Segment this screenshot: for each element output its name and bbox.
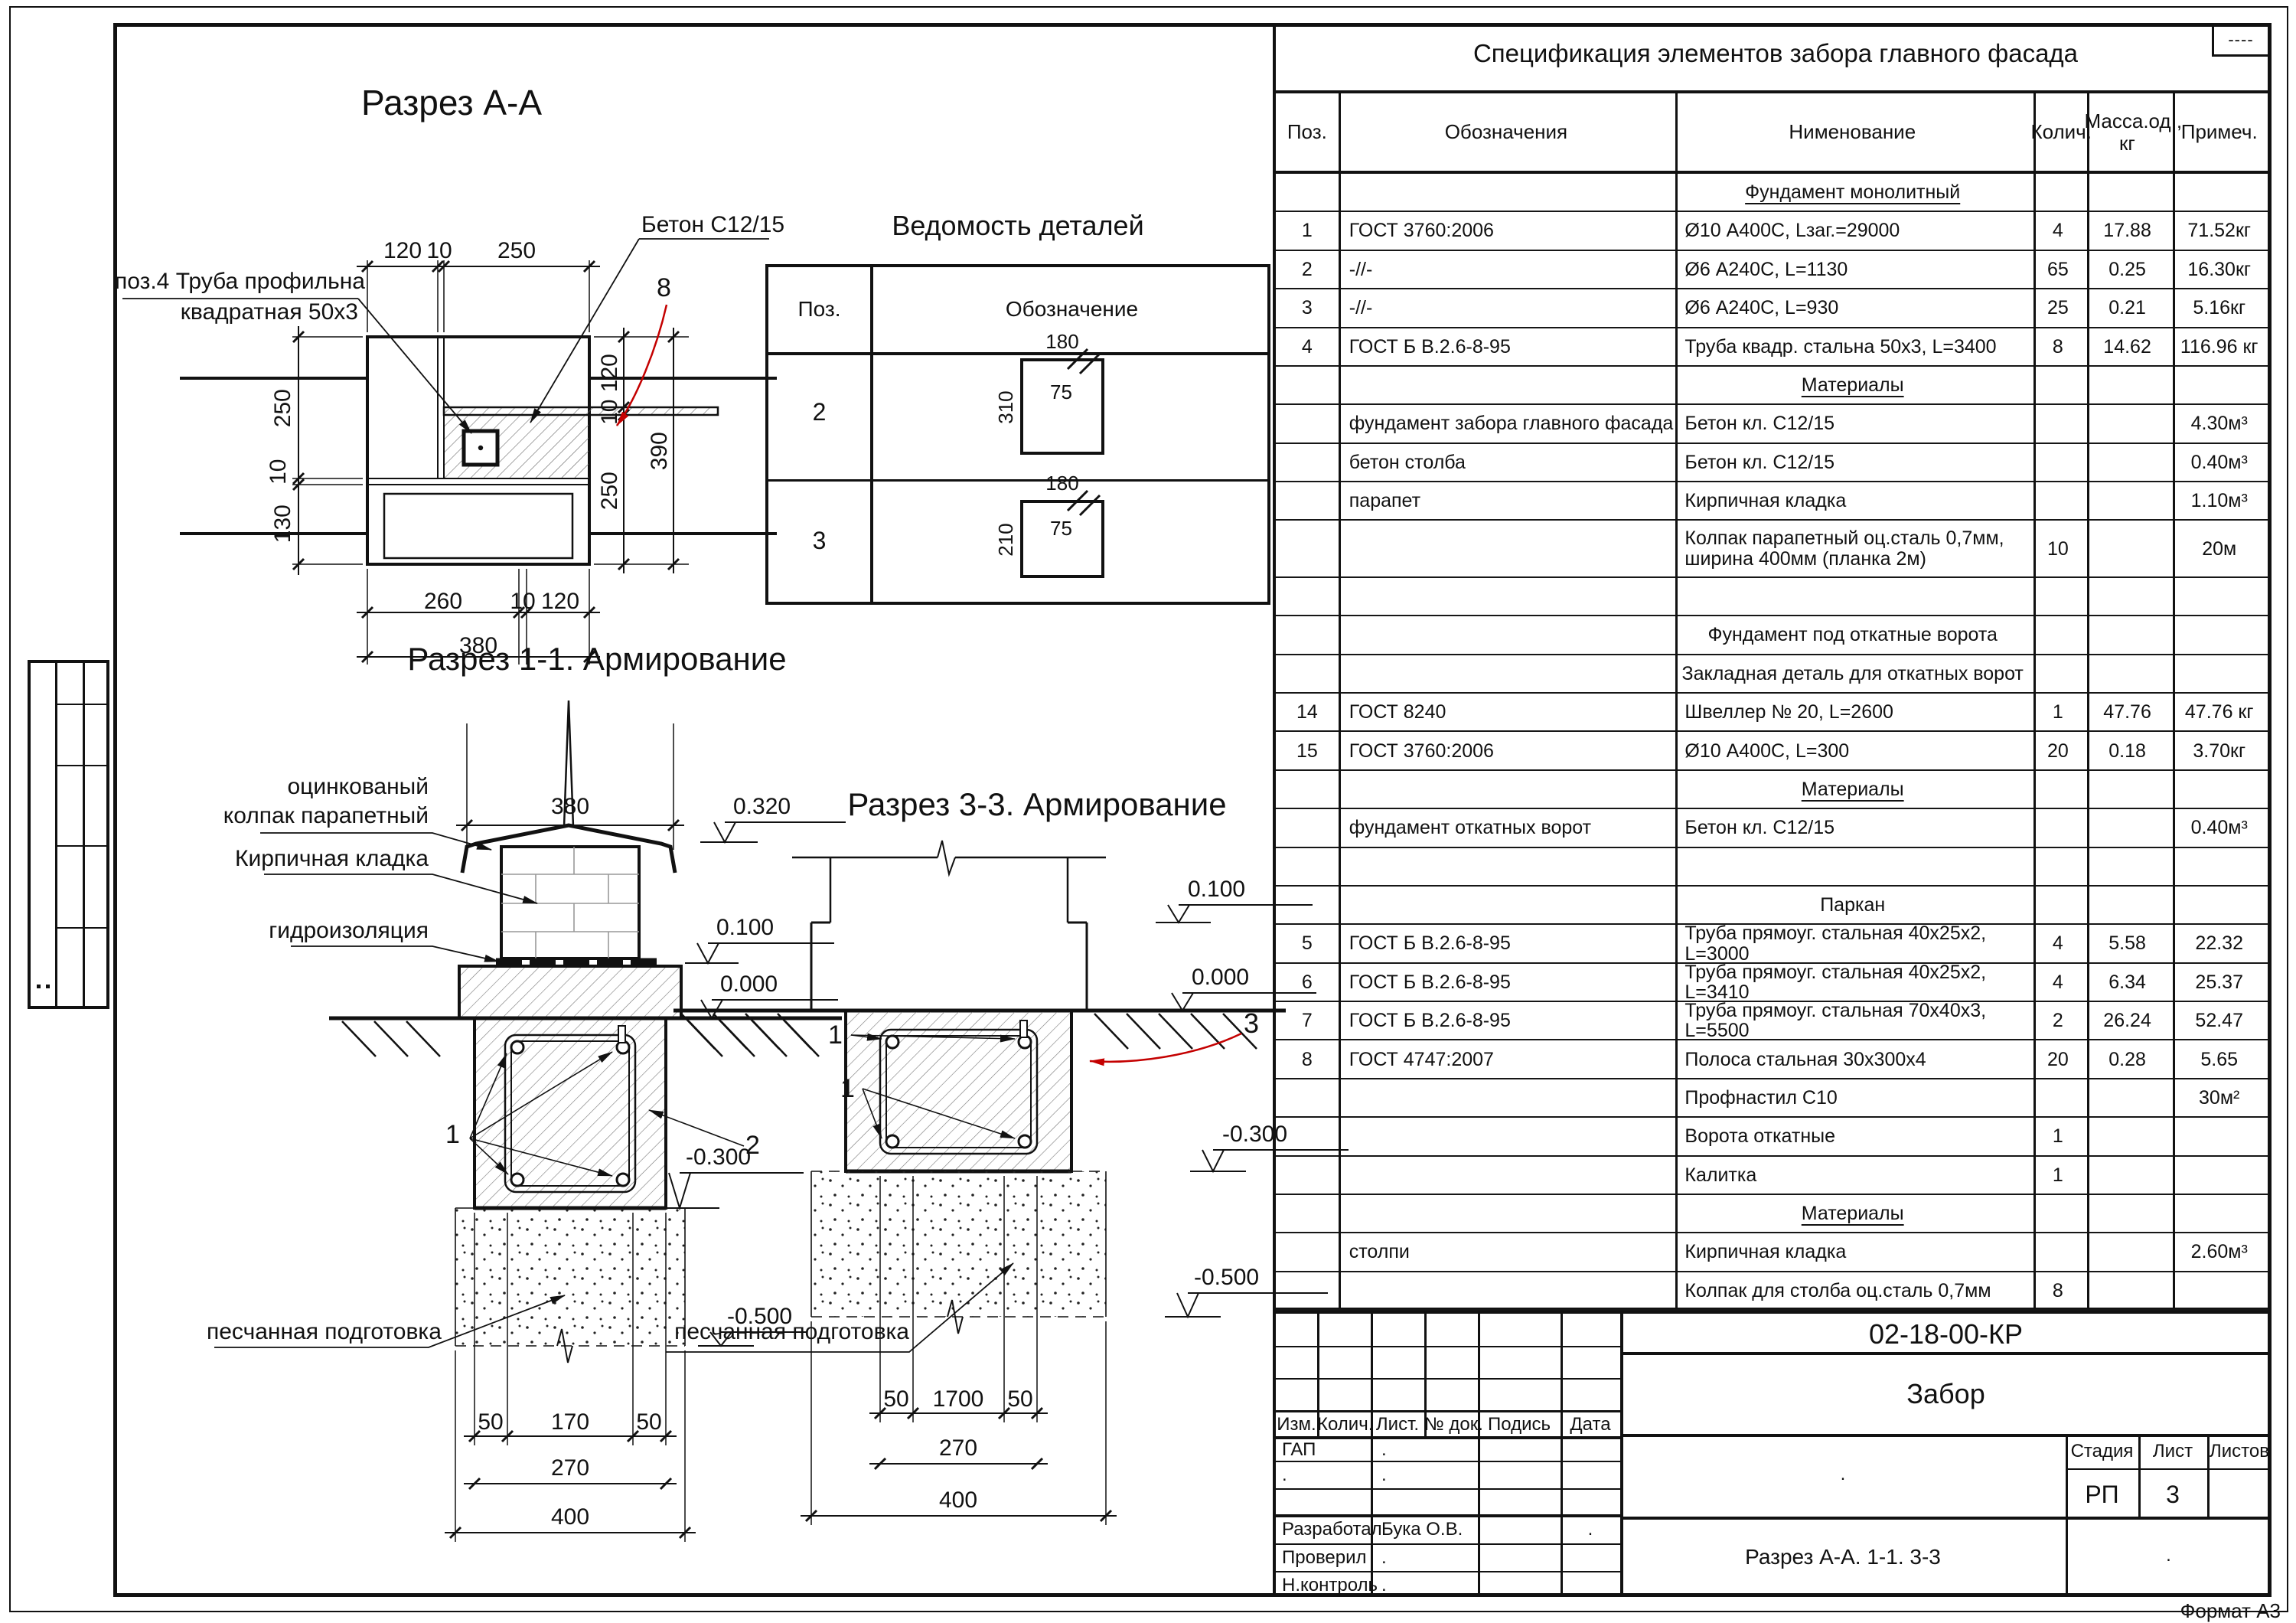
spec-table: Поз. Обозначения Нименование Колич. Масс… bbox=[1273, 90, 2272, 1311]
tb-line bbox=[1561, 1314, 1563, 1593]
details-sketches bbox=[765, 264, 1270, 605]
spec-item-row: фундамент откатных воротБетон кл. С12/15… bbox=[1276, 809, 2268, 847]
section-33-drawing bbox=[658, 834, 1378, 1592]
spec-section-title: Закладная деталь для откатных ворот bbox=[1682, 663, 2024, 684]
spec-cell: Ø10 А400С, L=300 bbox=[1674, 741, 2031, 761]
spec-cell: ГОСТ 3760:2006 bbox=[1339, 741, 1675, 761]
spec-item-row: 2-//-Ø6 А240С, L=1130650.2516.30кг bbox=[1276, 251, 2268, 289]
spec-cell: Бетон кл. С12/15 bbox=[1674, 452, 2031, 472]
aa-dim: 250 bbox=[494, 239, 540, 263]
spec-cell: Закладная деталь для откатных ворот bbox=[1674, 664, 2031, 684]
s11-level: -0.300 bbox=[686, 1145, 751, 1170]
s33-callout: 3 bbox=[1244, 1009, 1259, 1039]
aa-dim: 120 bbox=[541, 589, 575, 614]
tb-cell-dot: . bbox=[1620, 1464, 2066, 1485]
aa-dim: 120 bbox=[380, 239, 426, 263]
s11-callout: 2 bbox=[745, 1132, 760, 1160]
spec-cell: -//- bbox=[1339, 298, 1675, 318]
spec-vline bbox=[2033, 93, 2036, 1308]
s33-dim: 50 bbox=[999, 1387, 1042, 1412]
spec-empty-row bbox=[1276, 848, 2268, 887]
spec-cell: 8 bbox=[2031, 337, 2085, 357]
spec-cell: 2 bbox=[1276, 260, 1339, 279]
tb-role-date: . bbox=[1561, 1519, 1620, 1540]
strip-line bbox=[55, 845, 106, 847]
spec-item-row: Ворота откатные1 bbox=[1276, 1118, 2268, 1156]
tb-col-podpis: Подись bbox=[1478, 1414, 1561, 1435]
spec-cell: Ø6 А240С, L=930 bbox=[1674, 298, 2031, 318]
spec-cell: 5.58 bbox=[2085, 933, 2170, 953]
spec-cell: 0.28 bbox=[2085, 1050, 2170, 1069]
tb-line bbox=[1620, 1352, 2272, 1355]
tb-line bbox=[1276, 1514, 1620, 1517]
spec-cell: 15 bbox=[1276, 741, 1339, 761]
spec-cell: бетон столба bbox=[1339, 452, 1675, 472]
spec-cell: Труба квадр. стальна 50х3, L=3400 bbox=[1674, 337, 2031, 357]
spec-section-row: Закладная деталь для откатных ворот bbox=[1276, 655, 2268, 694]
tb-object-name: Забор bbox=[1620, 1378, 2272, 1410]
spec-cell: 26.24 bbox=[2085, 1011, 2170, 1030]
spec-cell: 5 bbox=[1276, 933, 1339, 953]
strip-dot bbox=[37, 985, 41, 988]
spec-cell: ГОСТ Б В.2.6-8-95 bbox=[1339, 1011, 1675, 1030]
tb-line bbox=[1276, 1461, 1620, 1462]
spec-cell: Паркан bbox=[1674, 895, 2031, 915]
spec-vline bbox=[2087, 93, 2089, 1308]
spec-body: Фундамент монолитный1ГОСТ 3760:2006Ø10 А… bbox=[1276, 174, 2268, 1311]
spec-col-mass-1: Масса.од., bbox=[2084, 109, 2182, 132]
tb-line bbox=[1276, 1346, 1620, 1347]
spec-item-row: 8ГОСТ 4747:2007Полоса стальная 30х300х42… bbox=[1276, 1040, 2268, 1079]
spec-cell: 2 bbox=[2031, 1011, 2085, 1030]
spec-cell: 5.16кг bbox=[2170, 298, 2268, 318]
s11-label: гидроизоляция bbox=[253, 919, 429, 943]
tb-line bbox=[2066, 1468, 2272, 1470]
s33-sand-label: песчанная подготовка bbox=[657, 1320, 909, 1344]
spec-item-row: Профнастил С1030м² bbox=[1276, 1079, 2268, 1118]
tb-role-label: ГАП bbox=[1276, 1439, 1372, 1461]
spec-cell: Бетон кл. С12/15 bbox=[1674, 818, 2031, 838]
tb-col-list: Лист. bbox=[1371, 1414, 1424, 1435]
spec-item-row: Колпак парапетный оц.сталь 0,7мм, ширина… bbox=[1276, 521, 2268, 578]
spec-cell: 0.25 bbox=[2085, 260, 2170, 279]
spec-cell: 10 bbox=[2031, 539, 2085, 559]
spec-cell: Материалы bbox=[1674, 779, 2031, 799]
spec-vline bbox=[2173, 93, 2175, 1308]
spec-cell: Кирпичная кладка bbox=[1674, 491, 2031, 511]
spec-cell: 6.34 bbox=[2085, 972, 2170, 992]
spec-cell: 0.21 bbox=[2085, 298, 2170, 318]
spec-item-row: столпиКирпичная кладка2.60м³ bbox=[1276, 1233, 2268, 1272]
spec-title: Спецификация элементов забора главного ф… bbox=[1293, 40, 2258, 67]
spec-cell: Швеллер № 20, L=2600 bbox=[1674, 702, 2031, 722]
spec-cell: 2.60м³ bbox=[2170, 1242, 2268, 1262]
spec-section-title: Фундамент под откатные ворота bbox=[1707, 624, 1997, 645]
aa-dim: 250 bbox=[271, 385, 295, 431]
det-sketch-dim: 180 bbox=[1038, 472, 1087, 494]
spec-item-row: 4ГОСТ Б В.2.6-8-95Труба квадр. стальна 5… bbox=[1276, 328, 2268, 367]
spec-section-row: Материалы bbox=[1276, 771, 2268, 809]
spec-cell: 22.32 bbox=[2170, 933, 2268, 953]
s11-level: 0.320 bbox=[733, 795, 791, 819]
title-block: Изм. Колич. Лист. № док. Подись Дата ГАП… bbox=[1273, 1311, 2272, 1596]
tb-line bbox=[1276, 1571, 1620, 1572]
spec-cell: Фундамент под откатные ворота bbox=[1674, 625, 2031, 645]
spec-cell: ГОСТ Б В.2.6-8-95 bbox=[1339, 337, 1675, 357]
spec-cell: Колпак для столба оц.сталь 0,7мм bbox=[1674, 1281, 2031, 1301]
aa-dim: 10 bbox=[506, 589, 540, 614]
spec-cell: 25 bbox=[2031, 298, 2085, 318]
s11-level: 0.000 bbox=[720, 972, 778, 997]
spec-cell: Материалы bbox=[1674, 1203, 2031, 1223]
det-sketch-dim: 75 bbox=[1050, 518, 1072, 539]
tb-doc-number: 02-18-00-КР bbox=[1620, 1318, 2272, 1350]
s11-dim: 270 bbox=[549, 1456, 592, 1481]
spec-cell: 3.70кг bbox=[2170, 741, 2268, 761]
spec-cell: 4 bbox=[2031, 972, 2085, 992]
s33-level: -0.500 bbox=[1194, 1265, 1259, 1290]
aa-dim: 10 bbox=[598, 395, 622, 429]
tb-sheet-value: 3 bbox=[2138, 1481, 2207, 1509]
tb-line bbox=[1276, 1378, 1620, 1380]
spec-col-designation: Обозначения bbox=[1339, 121, 1674, 143]
spec-cell: 20 bbox=[2031, 1050, 2085, 1069]
spec-col-mass-2: кг bbox=[2119, 132, 2135, 155]
aa-dim: 10 bbox=[422, 239, 456, 263]
spec-item-row: бетон столбаБетон кл. С12/150.40м³ bbox=[1276, 444, 2268, 482]
spec-item-row: парапетКирпичная кладка1.10м³ bbox=[1276, 482, 2268, 521]
spec-cell: 116.96 кг bbox=[2170, 337, 2268, 357]
s11-dim: 50 bbox=[469, 1410, 512, 1435]
spec-cell: Кирпичная кладка bbox=[1674, 1242, 2031, 1262]
spec-section-title: Фундамент монолитный bbox=[1745, 181, 1960, 203]
spec-item-row: 3-//-Ø6 А240С, L=930250.215.16кг bbox=[1276, 289, 2268, 328]
spec-col-note: Примеч. bbox=[2170, 121, 2268, 143]
spec-section-row: Фундамент монолитный bbox=[1276, 174, 2268, 212]
spec-cell: парапет bbox=[1339, 491, 1675, 511]
spec-cell: Труба прямоуг. стальная 40х25х2, L=3000 bbox=[1674, 925, 2031, 963]
s33-dim: 270 bbox=[937, 1436, 980, 1461]
s11-dim: 50 bbox=[628, 1410, 670, 1435]
spec-section-row: Материалы bbox=[1276, 1195, 2268, 1233]
spec-cell: 0.40м³ bbox=[2170, 452, 2268, 472]
aa-dim: 250 bbox=[598, 468, 622, 514]
spec-section-row: Паркан bbox=[1276, 887, 2268, 925]
spec-cell: 8 bbox=[1276, 1050, 1339, 1069]
spec-cell: Ворота откатные bbox=[1674, 1126, 2031, 1146]
s11-dim: 380 bbox=[547, 795, 593, 819]
spec-col-qty: Колич. bbox=[2030, 121, 2084, 143]
tb-col-kolich: Колич. bbox=[1317, 1414, 1371, 1435]
spec-cell: 5.65 bbox=[2170, 1050, 2268, 1069]
spec-col-mass: Масса.од., кг bbox=[2084, 110, 2170, 154]
tb-role-label: . bbox=[1276, 1465, 1372, 1486]
spec-empty-row bbox=[1276, 578, 2268, 616]
aa-dim: 120 bbox=[598, 350, 622, 396]
s33-callout: 1 bbox=[828, 1021, 843, 1050]
tb-role-value: . bbox=[1375, 1575, 1481, 1596]
spec-cell: 4 bbox=[1276, 337, 1339, 357]
tb-role-label: Н.контроль bbox=[1276, 1575, 1372, 1596]
spec-cell: 8 bbox=[2031, 1281, 2085, 1301]
spec-cell: 0.40м³ bbox=[2170, 818, 2268, 838]
spec-header: Поз. Обозначения Нименование Колич. Масс… bbox=[1276, 93, 2268, 174]
spec-cell: Материалы bbox=[1674, 375, 2031, 395]
tb-line bbox=[1276, 1410, 1620, 1412]
left-stamp-strip bbox=[28, 660, 109, 1009]
spec-item-row: 1ГОСТ 3760:2006Ø10 А400С, Lзаг.=29000417… bbox=[1276, 212, 2268, 250]
spec-cell: ГОСТ Б В.2.6-8-95 bbox=[1339, 933, 1675, 953]
spec-cell: 1 bbox=[1276, 220, 1339, 240]
spec-cell: Ø6 А240С, L=1130 bbox=[1674, 260, 2031, 279]
tb-cell-dot: . bbox=[2066, 1545, 2272, 1566]
tb-col-dok: № док. bbox=[1424, 1414, 1478, 1435]
spec-cell: Колпак парапетный оц.сталь 0,7мм, ширина… bbox=[1674, 528, 2031, 569]
spec-item-row: 15ГОСТ 3760:2006Ø10 А400С, L=300200.183.… bbox=[1276, 732, 2268, 770]
spec-section-title: Паркан bbox=[1820, 894, 1885, 916]
spec-cell: ГОСТ 8240 bbox=[1339, 702, 1675, 722]
spec-col-name: Нименование bbox=[1674, 121, 2030, 143]
spec-cell: Фундамент монолитный bbox=[1674, 182, 2031, 202]
strip-line bbox=[55, 704, 106, 705]
tb-line bbox=[1276, 1488, 1620, 1490]
format-label: Формат А3 bbox=[2135, 1600, 2281, 1621]
s33-dim: 1700 bbox=[929, 1387, 987, 1412]
s11-label: оцинкованый bbox=[222, 775, 429, 799]
spec-cell: 4 bbox=[2031, 220, 2085, 240]
spec-cell: Калитка bbox=[1674, 1165, 2031, 1185]
spec-cell: -//- bbox=[1339, 260, 1675, 279]
aa-dim: 380 bbox=[455, 634, 501, 658]
s33-dim: 400 bbox=[937, 1488, 980, 1513]
spec-cell: 14.62 bbox=[2085, 337, 2170, 357]
spec-cell: 1 bbox=[2031, 1165, 2085, 1185]
spec-cell: 47.76 bbox=[2085, 702, 2170, 722]
s33-level: 0.000 bbox=[1192, 965, 1249, 990]
spec-cell: 25.37 bbox=[2170, 972, 2268, 992]
tb-line bbox=[1276, 1543, 1620, 1545]
aa-callout-8: 8 bbox=[657, 274, 671, 302]
det-sketch-dim: 210 bbox=[995, 517, 1016, 563]
tb-col-data: Дата bbox=[1561, 1414, 1620, 1435]
spec-cell: 4.30м³ bbox=[2170, 413, 2268, 433]
spec-cell: 20 bbox=[2031, 741, 2085, 761]
tb-stage-value: РП bbox=[2066, 1481, 2138, 1509]
det-sketch-dim: 75 bbox=[1050, 381, 1072, 403]
s33-dim: 50 bbox=[875, 1387, 918, 1412]
spec-section-title: Материалы bbox=[1802, 779, 1904, 800]
spec-section-title: Материалы bbox=[1802, 1203, 1904, 1224]
s11-callout: 1 bbox=[445, 1121, 460, 1149]
section-aa-title: Разрез А-А bbox=[306, 84, 597, 122]
tb-col-izm: Изм. bbox=[1276, 1414, 1317, 1435]
spec-cell: ГОСТ Б В.2.6-8-95 bbox=[1339, 972, 1675, 992]
strip-line bbox=[55, 663, 57, 1006]
spec-cell: 71.52кг bbox=[2170, 220, 2268, 240]
aa-dim: 10 bbox=[266, 455, 291, 488]
spec-cell: 3 bbox=[1276, 298, 1339, 318]
spec-item-row: 7ГОСТ Б В.2.6-8-95Труба прямоуг. стальна… bbox=[1276, 1002, 2268, 1040]
spec-cell: ГОСТ 4747:2007 bbox=[1339, 1050, 1675, 1069]
spec-cell: 6 bbox=[1276, 972, 1339, 992]
tb-line bbox=[1620, 1517, 2272, 1520]
spec-cell: Профнастил С10 bbox=[1674, 1088, 2031, 1108]
tb-line bbox=[1620, 1434, 2272, 1437]
spec-cell: Бетон кл. С12/15 bbox=[1674, 413, 2031, 433]
s11-level: 0.100 bbox=[716, 916, 774, 940]
spec-cell: 16.30кг bbox=[2170, 260, 2268, 279]
spec-cell: Ø10 А400С, Lзаг.=29000 bbox=[1674, 220, 2031, 240]
spec-col-pos: Поз. bbox=[1276, 121, 1339, 143]
tb-sheets-label: Листов bbox=[2207, 1441, 2272, 1462]
spec-item-row: 5ГОСТ Б В.2.6-8-95Труба прямоуг. стальна… bbox=[1276, 925, 2268, 963]
spec-item-row: 6ГОСТ Б В.2.6-8-95Труба прямоуг. стальна… bbox=[1276, 964, 2268, 1002]
strip-dot bbox=[46, 985, 50, 988]
spec-cell: ГОСТ 3760:2006 bbox=[1339, 220, 1675, 240]
spec-cell: Полоса стальная 30х300х4 bbox=[1674, 1050, 2031, 1069]
aa-dim: 130 bbox=[271, 501, 295, 547]
tb-sheet-label: Лист bbox=[2138, 1441, 2207, 1462]
spec-item-row: фундамент забора главного фасадаБетон кл… bbox=[1276, 405, 2268, 443]
spec-cell: 17.88 bbox=[2085, 220, 2170, 240]
spec-item-row: Колпак для столба оц.сталь 0,7мм8 bbox=[1276, 1272, 2268, 1311]
tb-stage-label: Стадия bbox=[2066, 1441, 2138, 1462]
tb-role-label: Разработал bbox=[1276, 1519, 1372, 1540]
spec-cell: Труба прямоуг. стальная 40х25х2, L=3410 bbox=[1674, 964, 2031, 1002]
s11-label: песчанная подготовка bbox=[207, 1320, 429, 1344]
tb-role-label: Проверил bbox=[1276, 1547, 1372, 1569]
s11-dim: 400 bbox=[549, 1505, 592, 1530]
det-sketch-dim: 180 bbox=[1038, 331, 1087, 352]
s11-dim: 170 bbox=[549, 1410, 592, 1435]
s33-callout: 1 bbox=[840, 1075, 855, 1103]
spec-vline bbox=[1675, 93, 1678, 1308]
spec-cell: 1.10м³ bbox=[2170, 491, 2268, 511]
tb-role-value: . bbox=[1375, 1547, 1481, 1569]
spec-cell: фундамент забора главного фасада bbox=[1339, 413, 1675, 433]
tb-role-value: Бука О.В. bbox=[1375, 1519, 1481, 1540]
spec-cell: столпи bbox=[1339, 1242, 1675, 1262]
strip-line bbox=[55, 765, 106, 766]
spec-cell: Труба прямоуг. стальная 70х40х3, L=5500 bbox=[1674, 1002, 2031, 1040]
tb-role-value: . bbox=[1375, 1439, 1481, 1461]
spec-item-row: 14ГОСТ 8240Швеллер № 20, L=2600147.7647.… bbox=[1276, 694, 2268, 732]
spec-cell: 0.18 bbox=[2085, 741, 2170, 761]
aa-pipe-label-2: квадратная 50х3 bbox=[115, 300, 358, 325]
spec-cell: 52.47 bbox=[2170, 1011, 2268, 1030]
spec-cell: 1 bbox=[2031, 702, 2085, 722]
spec-cell: 65 bbox=[2031, 260, 2085, 279]
s11-label: Кирпичная кладка bbox=[222, 847, 429, 871]
tb-role-value: . bbox=[1375, 1465, 1481, 1486]
det-sketch-dim: 310 bbox=[995, 384, 1016, 430]
tb-drawing-name: Разрез А-А. 1-1. 3-3 bbox=[1620, 1545, 2066, 1569]
spec-cell: 30м² bbox=[2170, 1088, 2268, 1108]
spec-cell: 1 bbox=[2031, 1126, 2085, 1146]
spec-cell: 14 bbox=[1276, 702, 1339, 722]
spec-item-row: Калитка1 bbox=[1276, 1157, 2268, 1195]
aa-dim: 260 bbox=[420, 589, 466, 614]
drawing-sheet: ---- bbox=[0, 0, 2296, 1623]
spec-cell: фундамент откатных ворот bbox=[1339, 818, 1675, 838]
details-title: Ведомость деталей bbox=[834, 211, 1202, 241]
s33-level: 0.100 bbox=[1188, 877, 1245, 902]
spec-cell: 47.76 кг bbox=[2170, 702, 2268, 722]
section-33-title: Разрез 3-3. Армирование bbox=[838, 787, 1236, 821]
strip-line bbox=[83, 663, 85, 1006]
spec-cell: 20м bbox=[2170, 539, 2268, 559]
spec-section-row: Фундамент под откатные ворота bbox=[1276, 616, 2268, 655]
aa-pipe-label-1: поз.4 Труба профильна bbox=[115, 269, 358, 294]
spec-section-title: Материалы bbox=[1802, 374, 1904, 396]
spec-vline bbox=[1339, 93, 1341, 1308]
strip-line bbox=[55, 927, 106, 929]
aa-dim: 390 bbox=[647, 428, 672, 474]
spec-section-row: Материалы bbox=[1276, 367, 2268, 405]
s11-label: колпак парапетный bbox=[191, 804, 429, 828]
spec-cell: 7 bbox=[1276, 1011, 1339, 1030]
aa-concrete-label: Бетон С12/15 bbox=[641, 213, 784, 237]
spec-cell: 4 bbox=[2031, 933, 2085, 953]
